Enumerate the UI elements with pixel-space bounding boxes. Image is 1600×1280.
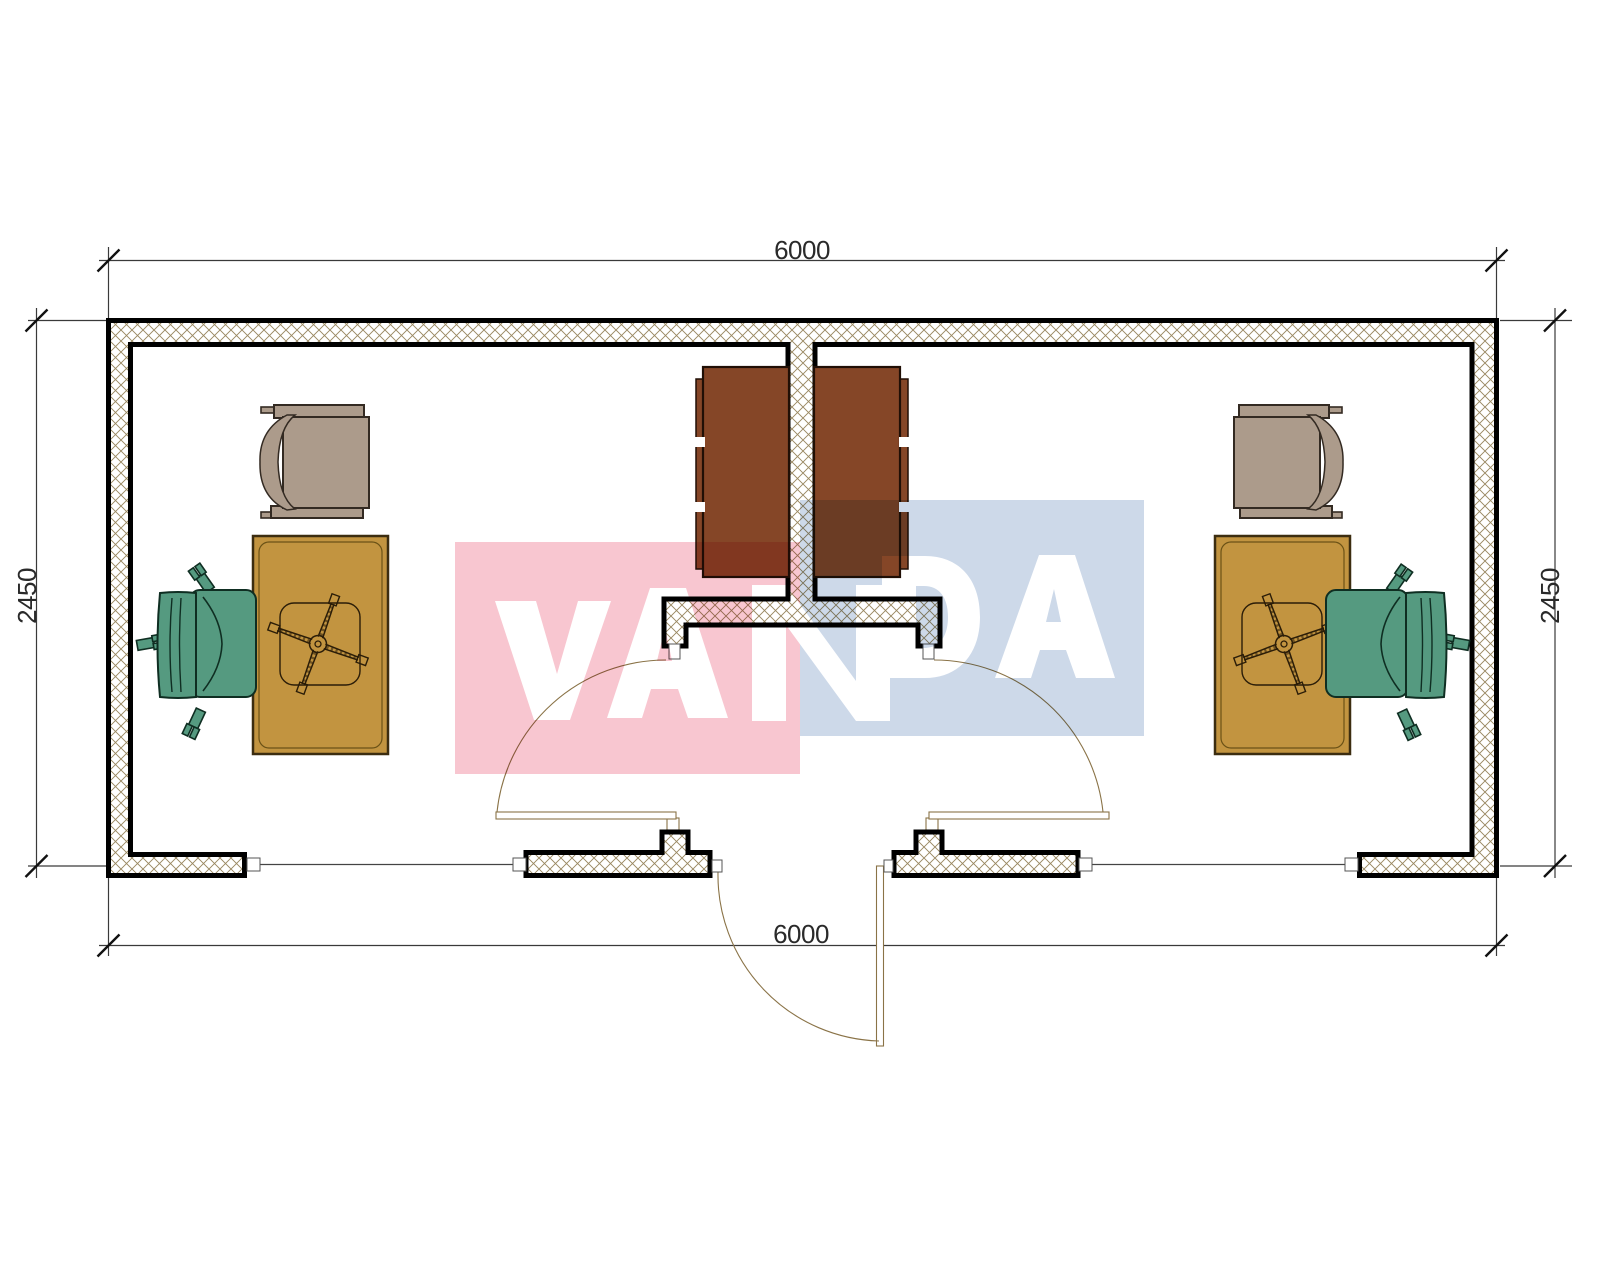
svg-text:6000: 6000 — [773, 919, 829, 949]
svg-text:2450: 2450 — [12, 568, 42, 624]
svg-text:2450: 2450 — [1535, 568, 1565, 624]
svg-text:6000: 6000 — [774, 235, 830, 265]
